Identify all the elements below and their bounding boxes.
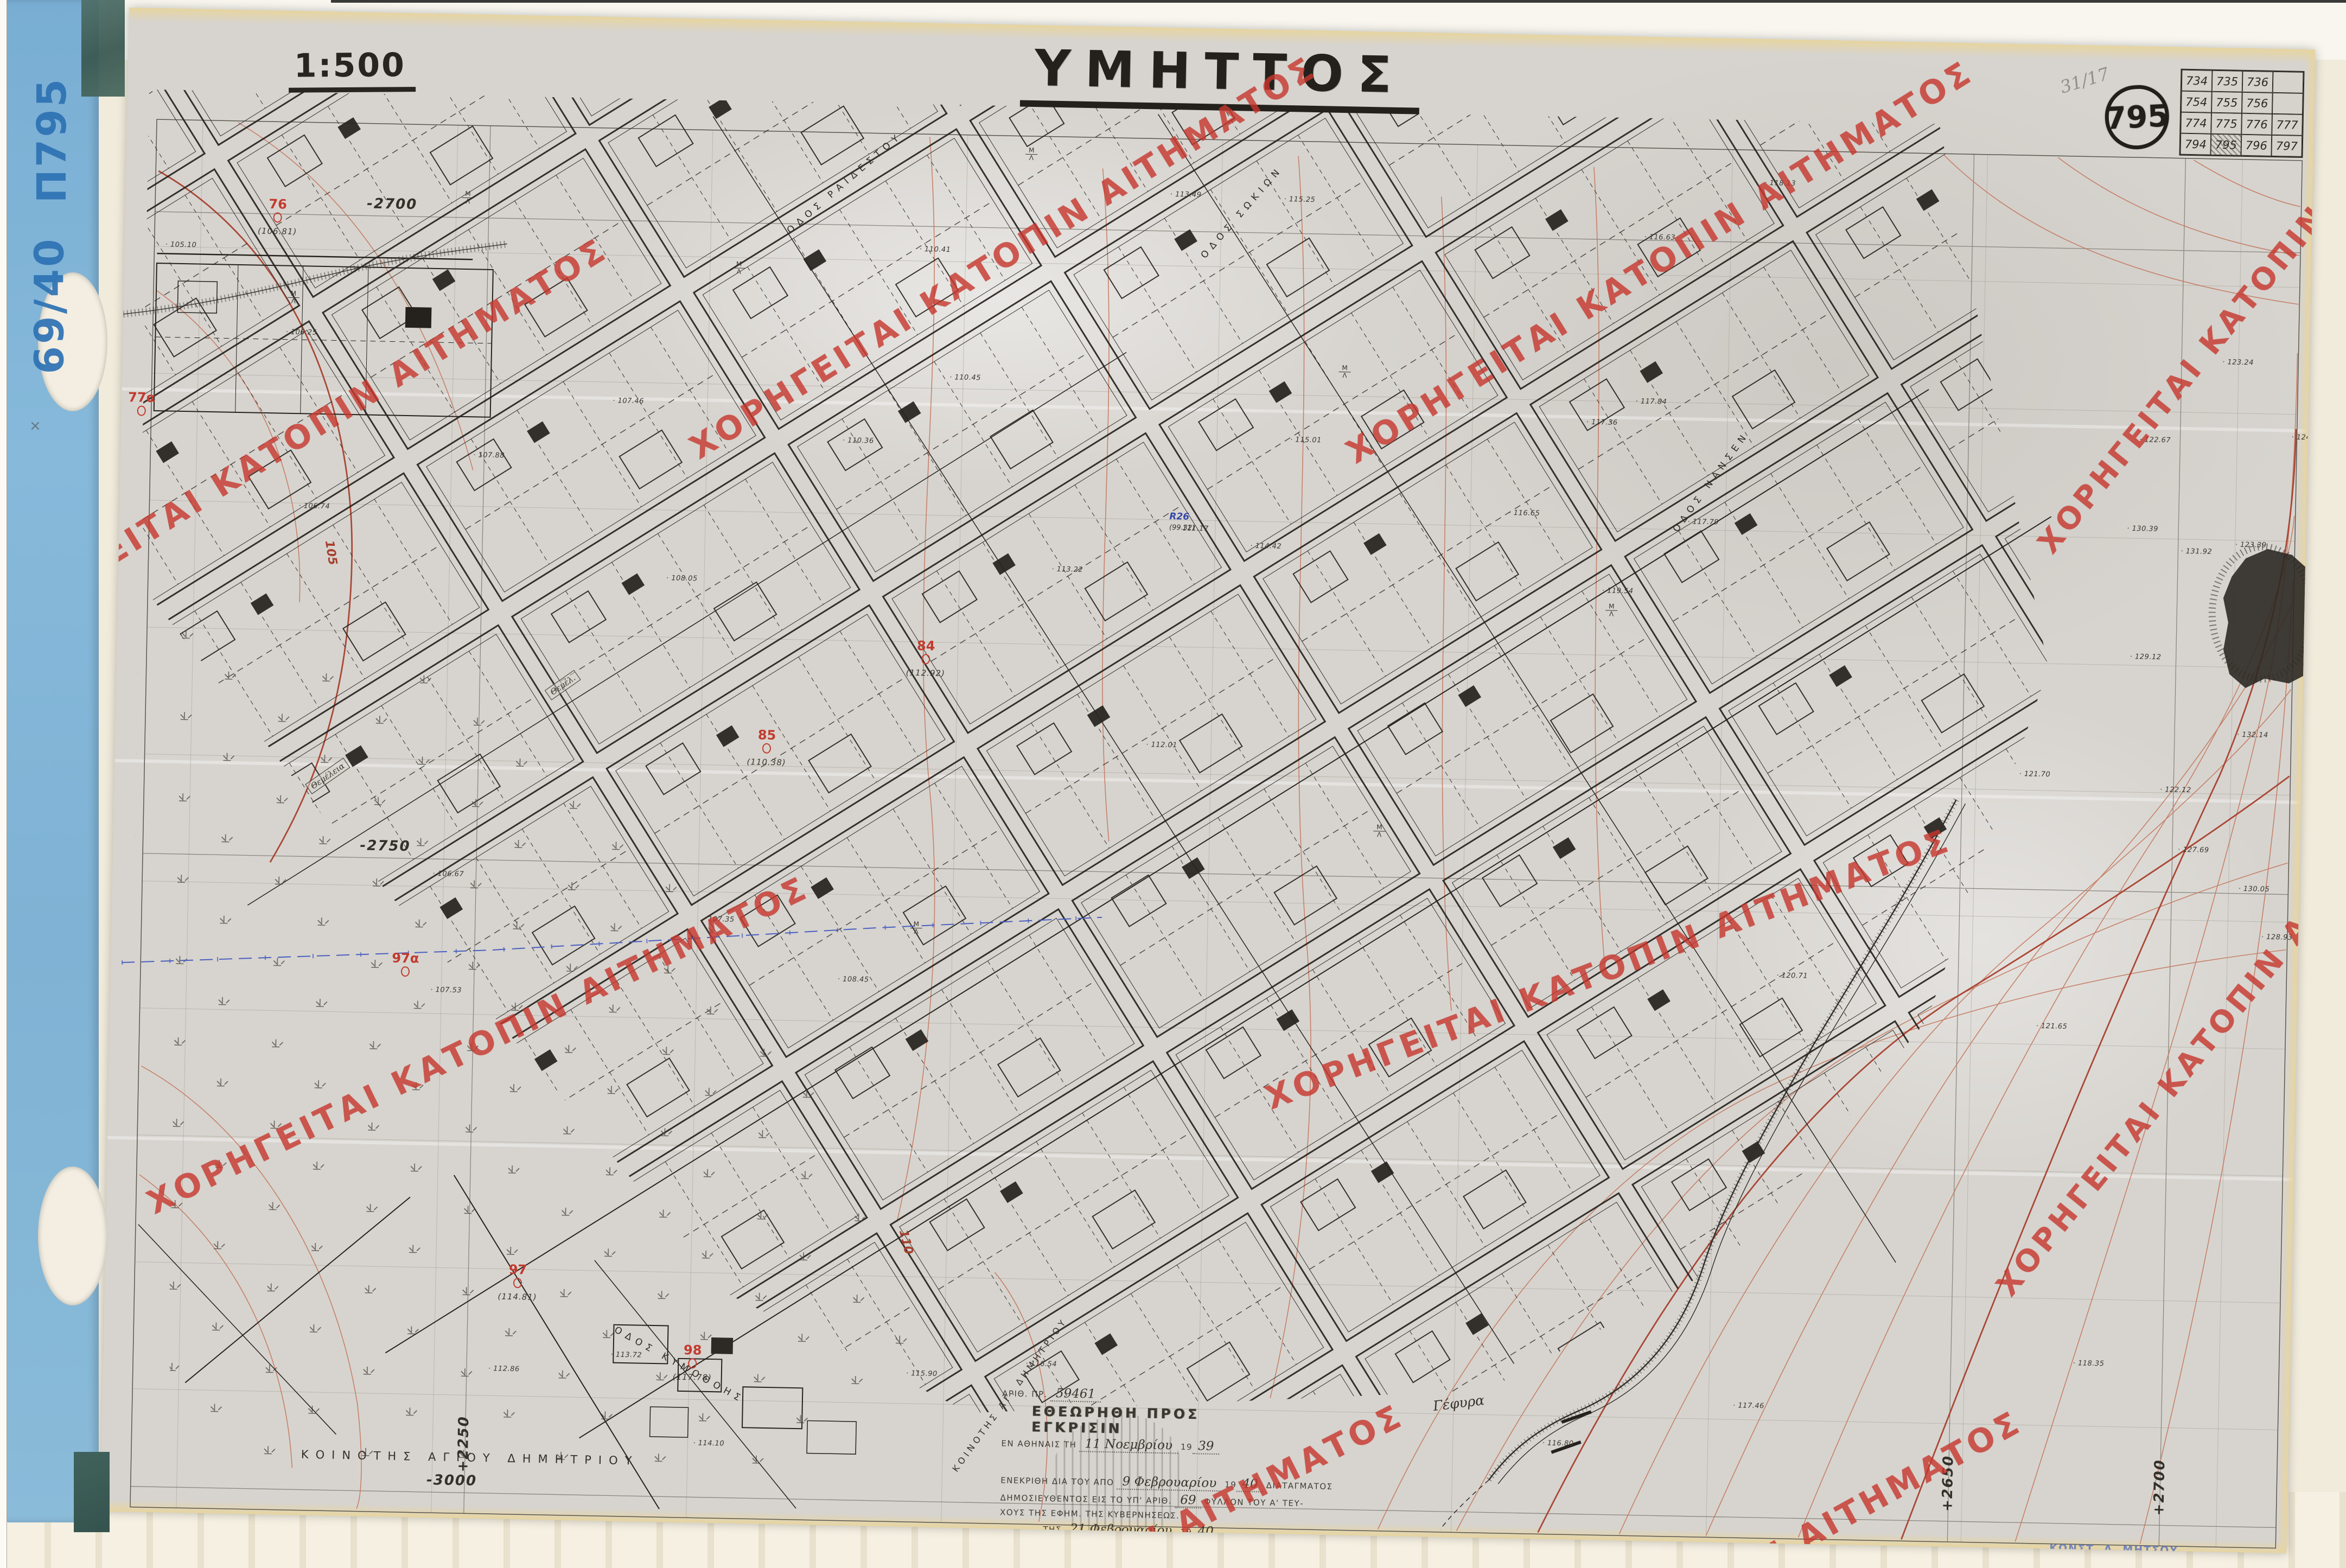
spot-height: 127.69 (2178, 846, 2209, 855)
spot-height: 115.01 (1290, 436, 1322, 444)
spot-height: 120.71 (1776, 972, 1808, 980)
ref-number: 59461 (1050, 1386, 1101, 1403)
index-table: 734 735 736 754 755 756 774 775 776 777 … (2179, 69, 2304, 158)
spot-height: 117.36 (1586, 418, 1618, 427)
ref-label: ΑΡΙΘ. ΠΡ. (1002, 1388, 1048, 1399)
spot-height: 124.26 (2291, 434, 2315, 442)
index-cell (2273, 72, 2304, 93)
spot-height: 107.88 (473, 451, 505, 460)
spot-height: 112.01 (1146, 741, 1177, 749)
code-denominator: Λ (1338, 372, 1350, 379)
block-id: 76 (269, 196, 287, 212)
block-elevation: (110.38) (747, 757, 786, 767)
grid-label: -2750 (360, 837, 411, 855)
code-denominator: Λ (1605, 610, 1617, 617)
block-circle-icon (762, 743, 771, 754)
block-circle-icon (401, 966, 410, 977)
code-numerator: Μ (1373, 824, 1385, 831)
code-numerator: Μ (288, 290, 299, 298)
spot-height: 118.35 (2073, 1359, 2105, 1368)
spot-height: 117.84 (1635, 397, 1667, 406)
spot-height: 116.54 (1025, 1360, 1057, 1368)
spot-height: 132.14 (2237, 731, 2268, 740)
code-numerator: Μ (462, 190, 474, 198)
spot-height: 129.12 (2130, 653, 2162, 661)
index-cell-current-sheet: 795 (2210, 134, 2241, 156)
index-cell: 775 (2211, 113, 2242, 135)
code-numerator: Μ (910, 921, 922, 928)
spot-height: 130.39 (2127, 525, 2158, 533)
spot-height: 111.17 (1177, 524, 1209, 533)
spot-height: 106.67 (432, 870, 464, 878)
spot-height: 110.45 (949, 373, 981, 382)
code-denominator: Λ (733, 268, 745, 275)
spot-height: 107.46 (613, 397, 644, 405)
code-numerator: Μ (1025, 147, 1037, 155)
scale-label: 1:500 (289, 46, 416, 93)
block-id: 98 (684, 1342, 702, 1358)
code-numerator: Μ (733, 260, 745, 268)
index-cell (2272, 93, 2303, 114)
spot-height: 123.24 (2222, 358, 2254, 367)
spot-height: 114.42 (1250, 542, 1282, 551)
grid-label: -2700 (367, 195, 418, 213)
spot-height: 113.22 (1051, 565, 1083, 574)
spot-height: 106.74 (298, 502, 330, 511)
pencil-mark: × (29, 418, 41, 434)
index-cell: 774 (2181, 112, 2211, 134)
code-denominator: Λ (462, 197, 474, 205)
block-number: 84(112.92) (906, 639, 946, 678)
block-circle-icon (137, 405, 145, 416)
block-elevation: (117.78) (673, 1372, 712, 1382)
grid-label: -3000 (426, 1472, 477, 1489)
spot-height: 115.90 (906, 1369, 938, 1378)
tape-piece (74, 1452, 110, 1532)
index-cell: 794 (2181, 133, 2211, 155)
year-1: 39 (1193, 1439, 1220, 1455)
benchmark-id: R26 (1169, 512, 1195, 522)
index-cell: 754 (2181, 91, 2212, 113)
spot-height: 113.49 (1170, 190, 1202, 199)
block-id: 85 (758, 727, 776, 743)
spot-height: 110.41 (920, 245, 951, 254)
block-number: 98(117.78) (673, 1343, 713, 1382)
spot-height: 112.86 (488, 1365, 520, 1373)
index-cell: 797 (2271, 135, 2302, 157)
hole-punch (38, 1167, 107, 1305)
block-elevation: (106.81) (258, 226, 297, 237)
spot-height: 121.70 (2019, 770, 2050, 779)
block-circle-icon (688, 1358, 697, 1368)
building-code: ΜΛ (1338, 365, 1350, 379)
spot-height: 116.65 (1508, 509, 1540, 518)
tape-piece (81, 0, 125, 97)
block-circle-icon (921, 654, 930, 664)
code-denominator: Λ (1373, 831, 1385, 838)
spot-height: 116.80 (1542, 1439, 1574, 1448)
spot-height: 107.53 (430, 986, 462, 995)
block-id: 84 (917, 638, 935, 654)
code-numerator: Μ (1605, 603, 1617, 610)
code-denominator: Λ (288, 297, 299, 304)
index-cell: 736 (2242, 71, 2273, 93)
index-cell: 796 (2241, 135, 2272, 156)
spot-height: 130.05 (2238, 885, 2269, 894)
page-left-margin (0, 0, 7, 1568)
block-circle-icon (273, 212, 282, 222)
building-code: ΜΛ (1605, 603, 1617, 617)
index-cell: 755 (2211, 92, 2242, 113)
block-id: 97α (392, 951, 419, 966)
spot-height: 113.72 (610, 1350, 642, 1359)
building-code: ΜΛ (910, 921, 922, 935)
grid-label: +2700 (2151, 1459, 2168, 1516)
spot-height: 122.12 (2160, 786, 2191, 794)
building-code: ΜΛ (288, 290, 299, 305)
index-cell: 735 (2212, 71, 2243, 92)
spot-height: 121.65 (2036, 1022, 2067, 1031)
building-code: ΜΛ (1373, 824, 1385, 838)
block-id: 77α (128, 390, 155, 405)
binder-label-top: Π795 (29, 77, 75, 203)
map-linework (100, 8, 2315, 1553)
block-elevation: (112.92) (906, 668, 946, 678)
year-prefix: 19 (1181, 1442, 1193, 1452)
index-cell: 756 (2242, 92, 2273, 114)
spot-height: 106.25 (285, 328, 317, 337)
block-number: 85(110.38) (747, 728, 787, 767)
block-number: 97α (392, 952, 419, 978)
code-numerator: Μ (1339, 365, 1351, 372)
building-code: ΜΛ (1025, 147, 1037, 162)
block-number: 97(114.81) (498, 1263, 538, 1302)
index-cell: 776 (2241, 113, 2272, 135)
map-sheet: ΥΜΗΤΤΟΣ 1:500 795 31/17 734 735 736 754 … (100, 8, 2315, 1553)
block-elevation: (114.81) (498, 1291, 537, 1302)
block-number: 77α (128, 391, 156, 417)
code-denominator: Λ (910, 928, 922, 935)
building-code: ΜΛ (733, 260, 745, 275)
spot-height: 117.46 (1733, 1401, 1764, 1410)
spot-height: 119.54 (1602, 587, 1634, 595)
building-code: ΜΛ (462, 190, 474, 205)
spot-height: 114.10 (693, 1439, 724, 1448)
index-cell: 777 (2272, 114, 2303, 136)
spot-height: 123.39 (2235, 541, 2267, 550)
spot-height: 117.79 (1687, 518, 1719, 526)
index-cell: 734 (2182, 70, 2213, 92)
block-circle-icon (513, 1278, 522, 1288)
code-denominator: Λ (1025, 154, 1037, 161)
block-number: 76(106.81) (258, 197, 298, 237)
spot-height: 131.92 (2181, 547, 2212, 556)
block-id: 97 (509, 1262, 527, 1278)
spot-height: 108.45 (838, 975, 869, 984)
scan-edge-line (331, 0, 2346, 3)
spot-height: 108.05 (666, 574, 698, 583)
spot-height: 115.25 (1284, 195, 1315, 204)
spot-height: 105.10 (165, 240, 196, 249)
binder-label-bottom: 69/40 (26, 237, 73, 374)
spot-height: 110.36 (843, 436, 874, 445)
